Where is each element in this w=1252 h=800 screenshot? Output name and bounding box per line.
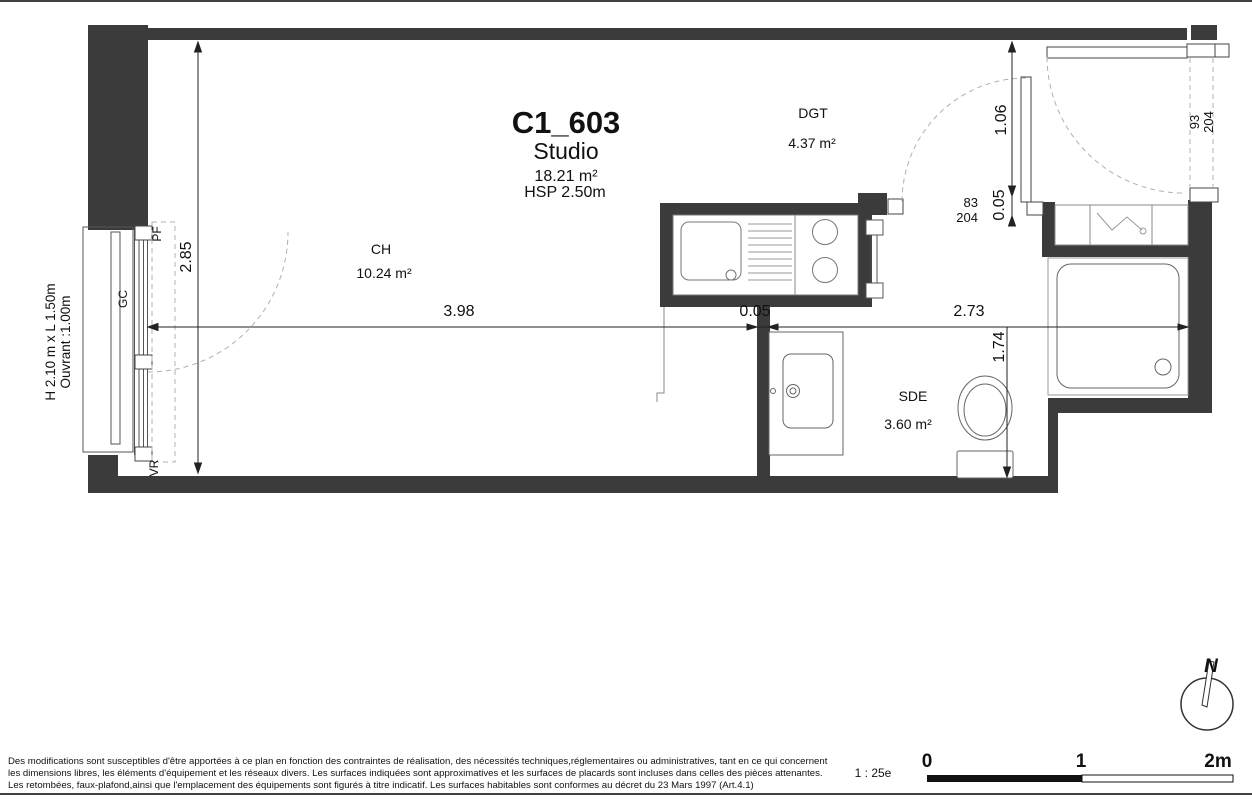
scale-bar xyxy=(927,775,1233,782)
scale-tick-2m: 2m xyxy=(1196,753,1240,771)
guardrail xyxy=(111,232,120,444)
window-size-line1: H 2.10 m x L 1.50m xyxy=(44,283,59,400)
balcony-window xyxy=(83,226,152,461)
floor-plan-sheet: C1_603 Studio 18.21 m² HSP 2.50m CH 10.2… xyxy=(0,0,1252,800)
tag-window: PF xyxy=(151,219,165,249)
entrance-door-swing-arc xyxy=(1047,57,1186,193)
dim-sde-depth: 1.74 xyxy=(992,317,1008,377)
door-sde-width: 83 xyxy=(964,196,978,210)
dim-entry: 1.06 xyxy=(994,90,1010,150)
burner-icon xyxy=(813,220,838,245)
ceiling-height: HSP 2.50m xyxy=(465,183,665,203)
room-label-dgt: DGT xyxy=(773,106,853,122)
disclaimer-line2: les dimensions libres, les éléments d'éq… xyxy=(8,768,823,780)
hanging-rail-icon xyxy=(1097,213,1142,230)
room-label-ch: CH xyxy=(341,242,421,258)
room-area-ch: 10.24 m² xyxy=(334,266,434,282)
disclaimer-line3: Les retombées, faux-plafond,ainsi que l'… xyxy=(8,780,754,792)
toilet-icon xyxy=(958,376,1012,440)
window-swing-arc xyxy=(148,232,288,372)
sink-icon xyxy=(681,222,741,280)
dim-sde-length: 2.73 xyxy=(939,304,999,320)
drainer-lines xyxy=(748,224,792,280)
unit-type: Studio xyxy=(466,139,666,165)
door-entrance-width: 93 xyxy=(1188,115,1202,129)
tag-guardrail: GC xyxy=(117,284,131,314)
kitchenette xyxy=(673,215,883,298)
dim-partition: 0.05 xyxy=(730,304,780,320)
door-entrance-height: 204 xyxy=(1202,111,1216,133)
scale-tick-0: 0 xyxy=(912,753,942,771)
partition-line xyxy=(657,307,664,402)
window-size-note: H 2.10 m x L 1.50m Ouvrant :1.00m xyxy=(42,242,76,442)
dim-entry-gap: 0.05 xyxy=(992,182,1008,228)
window-size-line2: Ouvrant :1.00m xyxy=(59,295,74,388)
dim-ch-length: 3.98 xyxy=(429,304,489,320)
tag-shutter: VR xyxy=(148,453,162,483)
sde-door-leaf xyxy=(1021,77,1031,202)
scale-ratio: 1 : 25e xyxy=(838,767,908,781)
door-size-entrance: 93 204 xyxy=(1185,102,1219,142)
scale-tick-1: 1 xyxy=(1066,753,1096,771)
balcony-outline xyxy=(83,227,133,452)
room-area-dgt: 4.37 m² xyxy=(762,136,862,152)
shutter-zone xyxy=(152,222,175,462)
shower-tray-icon xyxy=(1057,264,1179,388)
disclaimer-line1: Des modifications sont susceptibles d'êt… xyxy=(8,756,827,768)
door-sde-height: 204 xyxy=(956,211,978,225)
sink-drain-icon xyxy=(726,270,736,280)
closet xyxy=(1055,205,1188,245)
door-size-sde: 83 204 xyxy=(938,193,978,225)
burner-icon xyxy=(813,258,838,283)
room-label-sde: SDE xyxy=(873,389,953,405)
counter xyxy=(673,215,858,295)
dim-room-width: 2.85 xyxy=(179,227,195,287)
bathroom-fixtures xyxy=(657,258,1188,478)
entrance-door-leaf xyxy=(1047,47,1187,58)
toilet-tank xyxy=(957,451,1013,478)
doors xyxy=(888,44,1229,215)
north-label: N xyxy=(1196,657,1226,677)
unit-id: C1_603 xyxy=(466,106,666,140)
room-area-sde: 3.60 m² xyxy=(858,417,958,433)
